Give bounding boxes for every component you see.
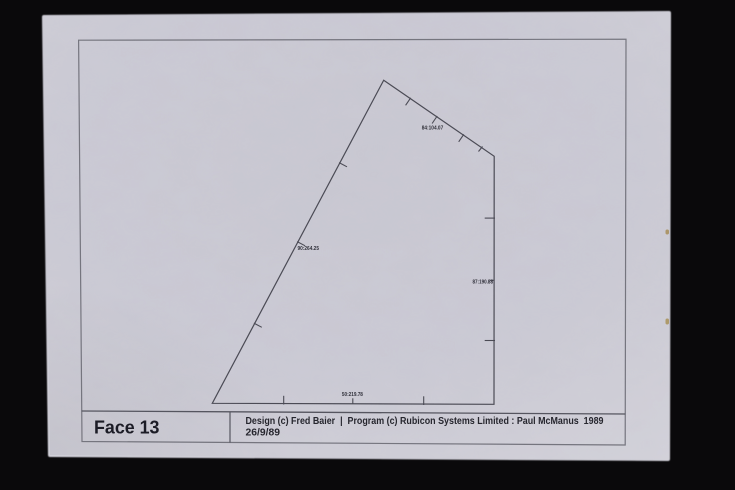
svg-text:26/9/89: 26/9/89: [246, 427, 281, 439]
svg-text:84:104.07: 84:104.07: [422, 126, 444, 132]
svg-text:50:219.78: 50:219.78: [342, 392, 363, 398]
svg-text:90:264.25: 90:264.25: [298, 246, 320, 252]
svg-text:Design (c) Fred Baier | Prog: Design (c) Fred Baier | Program (c) Rubi…: [246, 415, 604, 427]
svg-text:87:190.88: 87:190.88: [473, 280, 494, 286]
svg-text:Face 13: Face 13: [94, 418, 160, 438]
